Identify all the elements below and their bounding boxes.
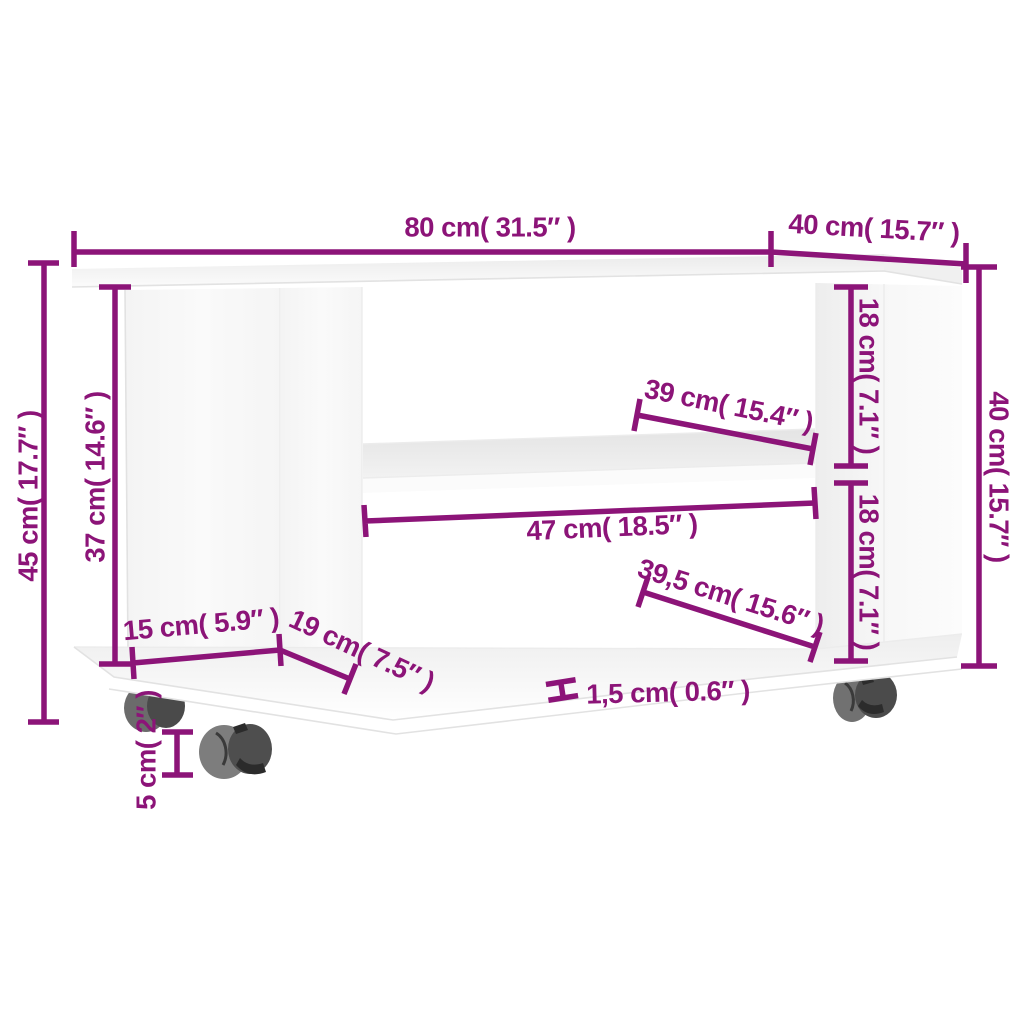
dimension-right-height-label: 40 cm( 15.7″ ) xyxy=(984,391,1015,562)
dimension-right-height: 40 cm( 15.7″ ) xyxy=(961,267,1015,666)
dimension-upper-compartment-height-label: 18 cm( 7.1″ ) xyxy=(854,298,885,454)
caster-front-left xyxy=(199,723,272,779)
dimension-overall-height-label: 45 cm( 17.7″ ) xyxy=(13,410,44,581)
left-side-panel xyxy=(125,288,280,652)
dimension-top-depth-label: 40 cm( 15.7″ ) xyxy=(788,208,961,249)
dimension-inner-height-label: 37 cm( 14.6″ ) xyxy=(80,391,111,562)
dimension-top-width-label: 80 cm( 31.5″ ) xyxy=(404,212,575,243)
top-panel xyxy=(72,254,962,287)
divider-panel xyxy=(281,287,362,648)
dimension-board-thickness-label: 1,5 cm( 0.6″ ) xyxy=(586,674,750,709)
dimension-lower-compartment-height-label: 18 cm( 7.1″ ) xyxy=(854,494,885,650)
product-dimension-image: 80 cm( 31.5″ ) 40 cm( 15.7″ ) 45 cm( 17.… xyxy=(0,0,1024,1024)
dimension-caster-height-label: 5 cm( 2″ ) xyxy=(131,690,162,810)
dimension-inner-height: 37 cm( 14.6″ ) xyxy=(80,287,132,664)
tv-stand-diagram: 80 cm( 31.5″ ) 40 cm( 15.7″ ) 45 cm( 17.… xyxy=(0,0,1024,1024)
dimension-overall-height: 45 cm( 17.7″ ) xyxy=(13,263,60,722)
